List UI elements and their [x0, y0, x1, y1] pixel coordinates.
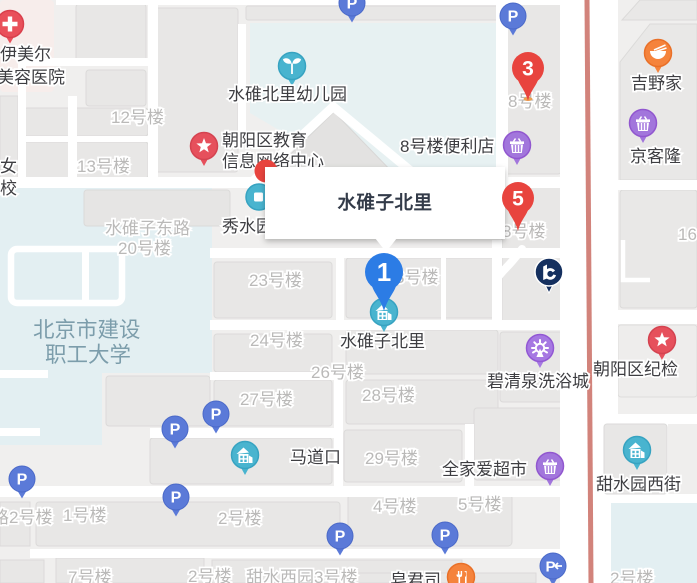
svg-text:水碓子东路: 水碓子东路 [105, 219, 190, 238]
svg-text:甜水园西街: 甜水园西街 [596, 475, 681, 494]
svg-text:27号楼: 27号楼 [240, 390, 293, 409]
svg-text:朝阳区纪检: 朝阳区纪检 [593, 360, 678, 379]
svg-text:校: 校 [0, 179, 17, 198]
svg-text:P: P [546, 559, 556, 576]
svg-text:伊美尔: 伊美尔 [0, 45, 51, 64]
svg-text:2号楼: 2号楼 [188, 567, 231, 583]
svg-text:2号楼: 2号楼 [610, 569, 653, 583]
svg-text:16: 16 [678, 225, 697, 244]
svg-text:职工大学: 职工大学 [45, 343, 131, 367]
svg-text:13号楼: 13号楼 [77, 157, 130, 176]
svg-text:20号楼: 20号楼 [118, 239, 171, 258]
svg-text:7号楼: 7号楼 [68, 568, 111, 583]
svg-text:路2号楼: 路2号楼 [0, 508, 52, 527]
svg-text:23号楼: 23号楼 [249, 271, 302, 290]
svg-text:8号楼便利店: 8号楼便利店 [400, 137, 494, 156]
svg-text:4号楼: 4号楼 [373, 497, 416, 516]
svg-text:P: P [170, 422, 181, 439]
svg-text:吉野家: 吉野家 [631, 74, 682, 93]
svg-text:28号楼: 28号楼 [362, 386, 415, 405]
svg-text:5号楼: 5号楼 [458, 495, 501, 514]
svg-text:5: 5 [512, 188, 524, 211]
svg-text:P: P [347, 0, 358, 13]
svg-text:29号楼: 29号楼 [365, 449, 418, 468]
svg-text:P: P [171, 490, 182, 507]
svg-text:P: P [17, 472, 28, 489]
svg-text:北京市建设: 北京市建设 [33, 318, 141, 342]
svg-text:全家爱超市: 全家爱超市 [442, 460, 527, 479]
svg-text:8号楼: 8号楼 [502, 222, 545, 241]
svg-text:1号楼: 1号楼 [63, 506, 106, 525]
svg-text:P: P [440, 528, 451, 545]
svg-text:女: 女 [0, 157, 17, 176]
svg-text:碧清泉洗浴城: 碧清泉洗浴城 [487, 372, 589, 391]
svg-text:24号楼: 24号楼 [250, 331, 303, 350]
svg-text:水碓子北里: 水碓子北里 [340, 332, 425, 351]
svg-text:26号楼: 26号楼 [311, 363, 364, 382]
svg-text:水碓北里幼儿园: 水碓北里幼儿园 [228, 85, 347, 104]
svg-text:12号楼: 12号楼 [111, 108, 164, 127]
svg-text:1: 1 [377, 257, 391, 287]
svg-text:美容医院: 美容医院 [0, 68, 65, 87]
svg-text:水碓子北里: 水碓子北里 [337, 192, 432, 214]
svg-text:P: P [508, 9, 519, 26]
svg-text:朝阳区教育: 朝阳区教育 [222, 131, 307, 150]
svg-text:京客隆: 京客隆 [630, 147, 681, 166]
svg-text:P: P [211, 407, 222, 424]
svg-text:2号楼: 2号楼 [218, 509, 261, 528]
svg-text:甜水西园3号楼: 甜水西园3号楼 [246, 568, 357, 583]
svg-text:皂君司: 皂君司 [390, 571, 441, 583]
svg-text:3: 3 [522, 58, 534, 81]
svg-text:马道口: 马道口 [290, 448, 341, 467]
svg-text:P: P [335, 529, 346, 546]
